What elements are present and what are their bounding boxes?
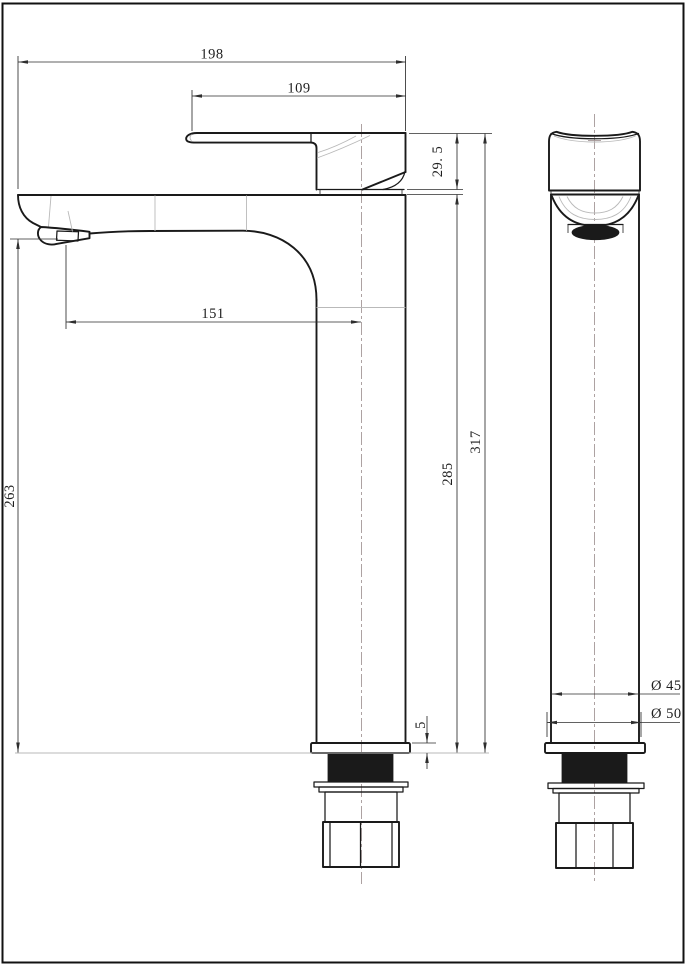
- spout-end-arc: [552, 197, 638, 227]
- aerator-housing: [38, 227, 90, 245]
- threaded-shank: [328, 754, 393, 782]
- washer-side: [548, 783, 644, 789]
- dim-label-spout-outlet-height: 263: [2, 484, 18, 507]
- dim-label-handle-height: 29. 5: [430, 146, 446, 178]
- aerator-insert: [57, 231, 79, 241]
- dim-label-spout-reach: 151: [201, 306, 224, 322]
- washer: [314, 782, 408, 787]
- dim-overall-length: 198: [18, 47, 406, 190]
- dim-label-deck-to-base-height: 285: [440, 462, 456, 485]
- base-flange-side: [545, 743, 645, 753]
- dim-label-overall-height: 317: [468, 430, 484, 453]
- dim-body-diameter: Ø 45: [552, 678, 682, 696]
- dim-label-flange-thickness: 5: [413, 721, 429, 729]
- dim-label-body-diameter: Ø 45: [651, 678, 682, 694]
- dim-label-handle-length: 109: [287, 81, 310, 97]
- dim-label-overall-length: 198: [200, 47, 223, 63]
- lever: [186, 133, 405, 143]
- dim-flange-thickness: 5: [412, 716, 436, 769]
- dimensions: 198 109 29. 5 285: [2, 47, 682, 770]
- body-side: [551, 191, 639, 744]
- threaded-shank-side: [562, 754, 627, 783]
- base-assembly-front: [311, 743, 410, 867]
- side-view: [545, 114, 645, 884]
- dim-deck-to-base-height: 285: [407, 195, 463, 753]
- aerator-face: [572, 225, 619, 239]
- spout: [18, 195, 317, 300]
- technical-drawing: 198 109 29. 5 285: [0, 0, 686, 970]
- spout-underside: [90, 231, 317, 300]
- drawing-sheet: 198 109 29. 5 285: [0, 0, 686, 970]
- locknut-collar: [325, 792, 397, 822]
- dim-spout-outlet-height: 263: [2, 239, 58, 753]
- dim-handle-height: 29. 5: [407, 134, 492, 190]
- front-view: [18, 124, 410, 884]
- body-front: [317, 195, 406, 743]
- dim-base-diameter: Ø 50: [547, 706, 682, 737]
- dim-overall-height: 317: [468, 134, 487, 753]
- handle-front: [186, 133, 405, 195]
- dim-label-base-diameter: Ø 50: [651, 706, 682, 722]
- base-assembly-side: [545, 743, 645, 868]
- base-flange: [311, 743, 410, 753]
- dim-handle-length: 109: [192, 81, 406, 132]
